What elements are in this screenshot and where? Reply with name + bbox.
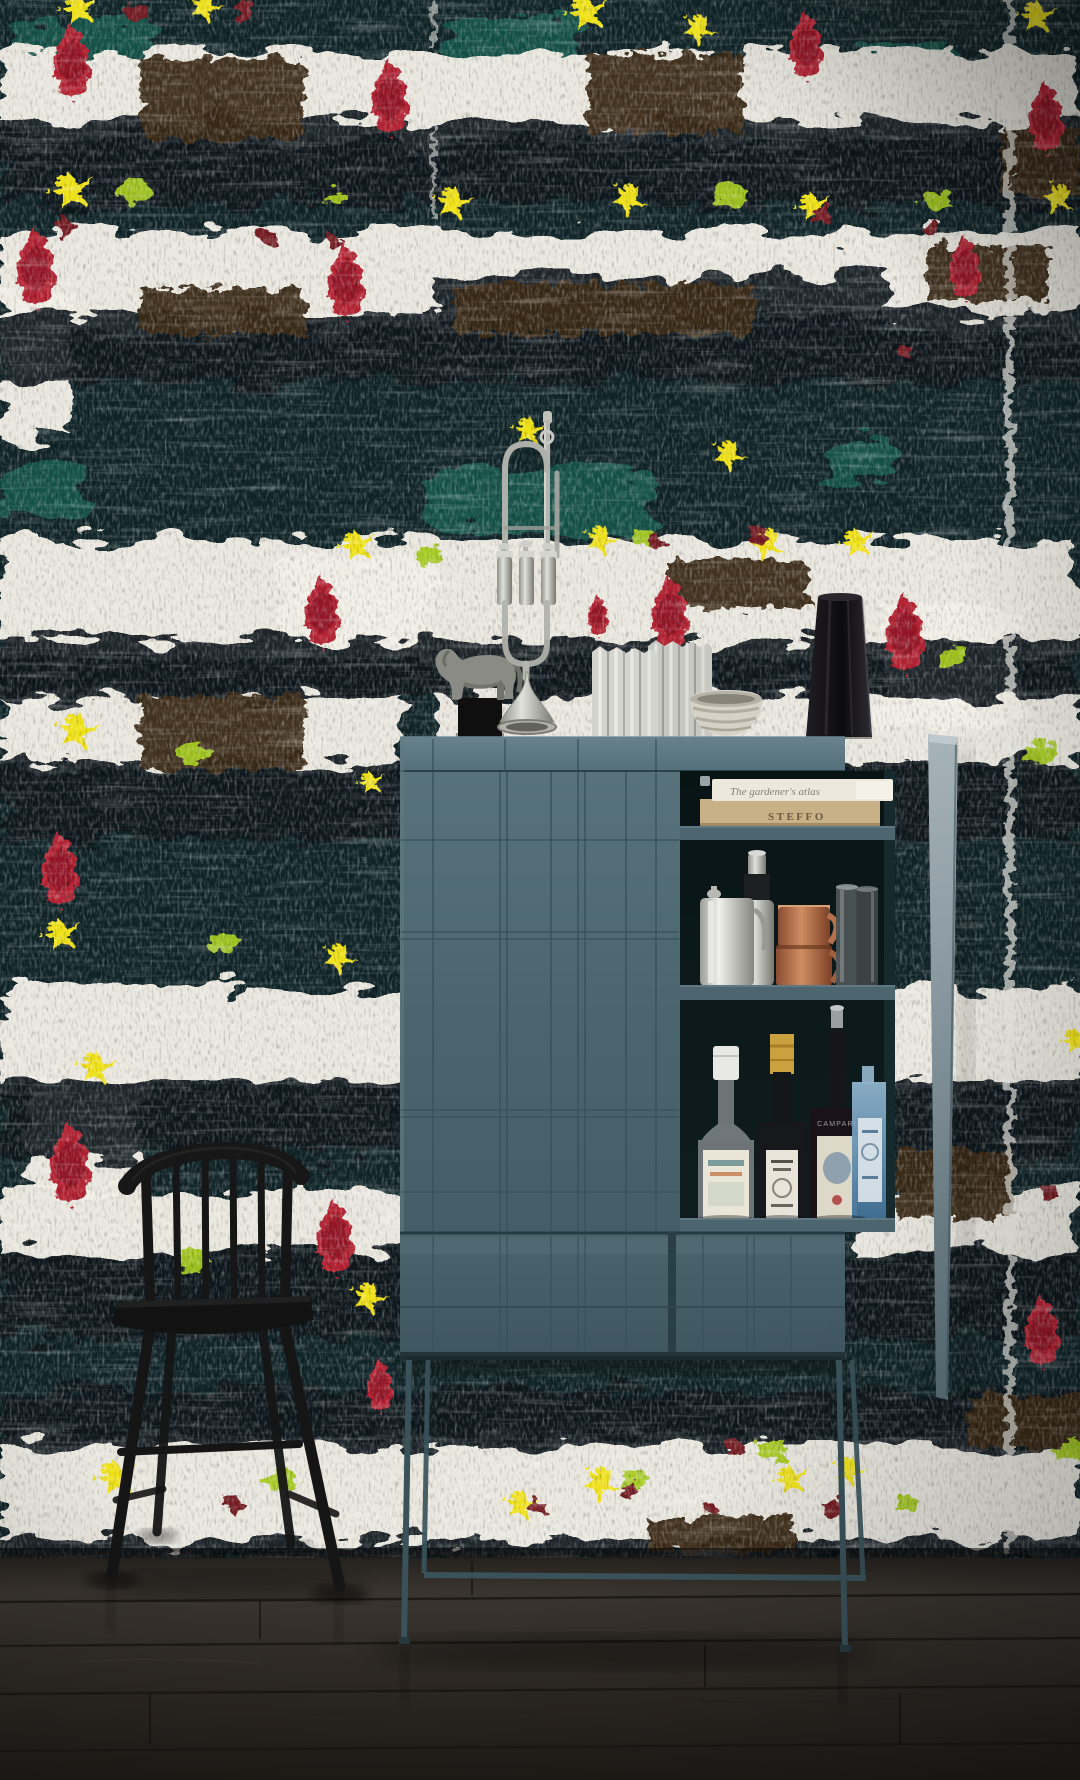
scene-svg: The gardener's atlas STEFFO xyxy=(0,0,1080,1780)
vignette xyxy=(0,0,1080,1780)
interior-photo: The gardener's atlas STEFFO xyxy=(0,0,1080,1780)
